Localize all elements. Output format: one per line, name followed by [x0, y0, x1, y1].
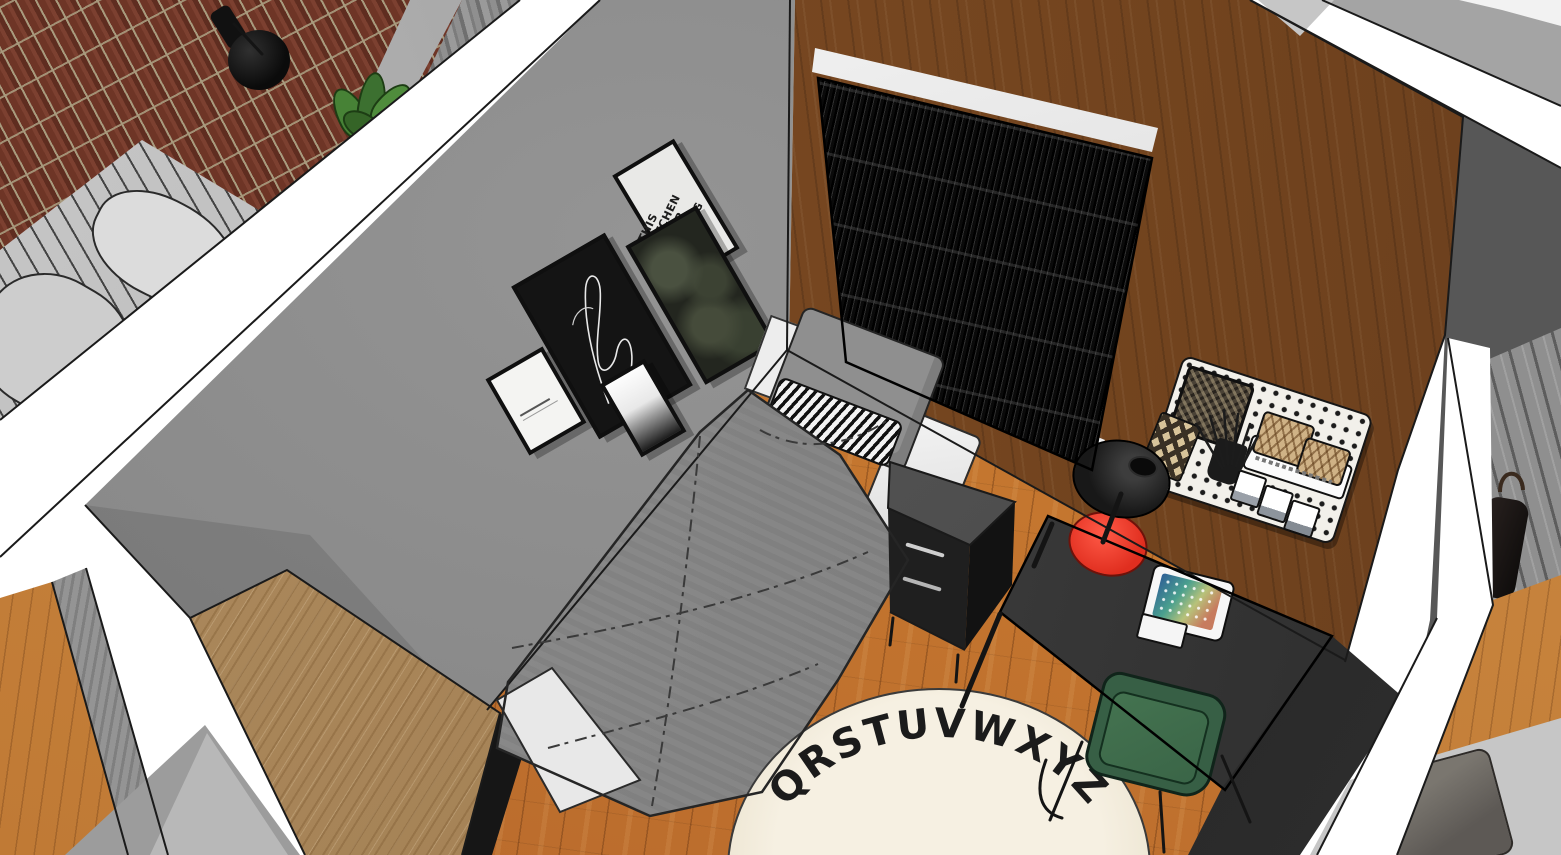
svg-text:QRSTUVWXYZABCD: QRSTUVWXYZABCD [729, 690, 1118, 814]
rug-letter-ring: QRSTUVWXYZABCD [729, 690, 1149, 855]
alphabet-rug: QRSTUVWXYZABCD [727, 688, 1151, 855]
room-3d-viewport[interactable]: THIS KITCHEN IS FOR DANCING [0, 0, 1561, 855]
wall-sconce-icon [228, 30, 290, 90]
lamp-shade-opening [1126, 454, 1160, 481]
rug-letters: QRSTUVWXYZABCD [729, 690, 1118, 814]
